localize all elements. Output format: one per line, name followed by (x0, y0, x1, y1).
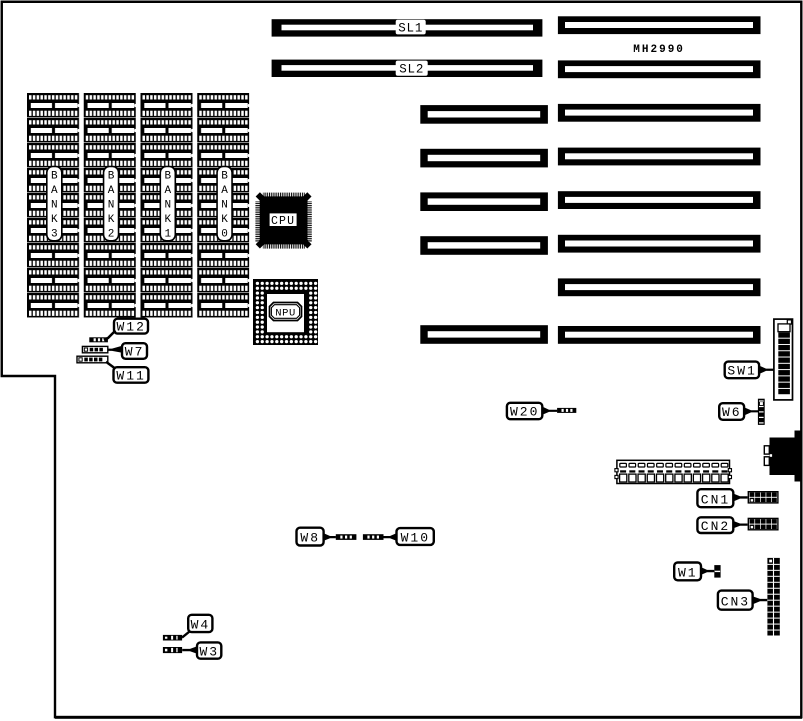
svg-text:SL1: SL1 (398, 22, 423, 36)
svg-text:A: A (164, 185, 171, 197)
svg-text:SL2: SL2 (399, 63, 424, 77)
svg-text:W8: W8 (300, 531, 320, 546)
svg-text:N: N (108, 199, 115, 211)
svg-text:2: 2 (108, 229, 115, 241)
svg-text:W10: W10 (401, 530, 430, 545)
svg-text:B: B (108, 170, 115, 182)
svg-text:W3: W3 (199, 644, 219, 659)
svg-text:B: B (51, 170, 58, 182)
svg-text:K: K (108, 214, 115, 226)
svg-text:CN1: CN1 (701, 492, 730, 507)
svg-text:N: N (51, 199, 58, 211)
svg-text:N: N (164, 199, 171, 211)
svg-text:N: N (221, 199, 228, 211)
svg-text:K: K (221, 214, 228, 226)
svg-text:3: 3 (51, 229, 58, 241)
svg-text:W20: W20 (510, 405, 539, 420)
svg-text:B: B (164, 170, 171, 182)
svg-text:W12: W12 (116, 320, 145, 335)
svg-text:W7: W7 (125, 344, 145, 359)
svg-text:NPU: NPU (275, 308, 296, 320)
svg-text:K: K (51, 214, 58, 226)
svg-text:W4: W4 (191, 617, 211, 632)
svg-text:K: K (164, 214, 171, 226)
svg-text:0: 0 (221, 229, 228, 241)
svg-text:SW1: SW1 (727, 364, 756, 379)
svg-text:A: A (108, 185, 115, 197)
svg-text:1: 1 (164, 229, 171, 241)
svg-text:CN2: CN2 (701, 519, 730, 534)
svg-text:W6: W6 (722, 405, 742, 420)
svg-text:A: A (51, 185, 58, 197)
svg-text:CPU: CPU (271, 215, 295, 228)
svg-text:MH2990: MH2990 (633, 44, 685, 56)
svg-text:W1: W1 (678, 565, 698, 580)
svg-text:A: A (221, 185, 228, 197)
svg-text:B: B (221, 170, 228, 182)
svg-text:W11: W11 (116, 369, 145, 384)
svg-text:CN3: CN3 (721, 595, 750, 610)
